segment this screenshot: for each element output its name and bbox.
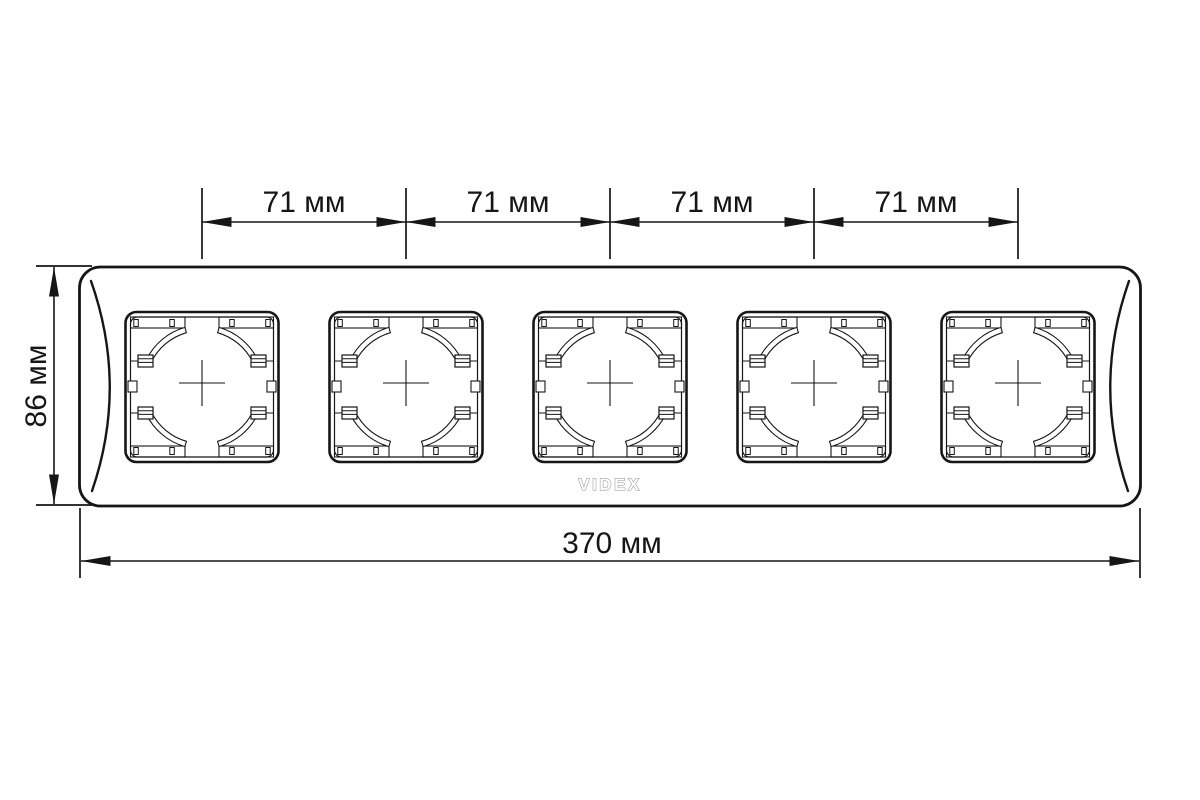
drawing-canvas: VIDEX 71 мм 71 мм 71 мм 71 мм 86 мм 370 … [0,0,1200,800]
dim-label-spacing-1: 71 мм [263,186,346,219]
socket-opening-5 [942,312,1095,462]
technical-drawing: VIDEX 71 мм 71 мм 71 мм 71 мм 86 мм 370 … [0,0,1200,800]
dim-label-height: 86 мм [20,345,53,428]
brand-logo-text: VIDEX [578,475,642,494]
socket-opening-1 [126,312,279,462]
socket-opening-4 [738,312,891,462]
dim-label-spacing-4: 71 мм [875,186,958,219]
dim-label-width: 370 мм [562,527,662,560]
dimension-top-group: 71 мм 71 мм 71 мм 71 мм [202,186,1018,259]
dim-label-spacing-3: 71 мм [671,186,754,219]
dimension-width-group: 370 мм [80,508,1140,578]
socket-opening-2 [330,312,483,462]
dim-label-spacing-2: 71 мм [467,186,550,219]
socket-opening-3 [534,312,687,462]
